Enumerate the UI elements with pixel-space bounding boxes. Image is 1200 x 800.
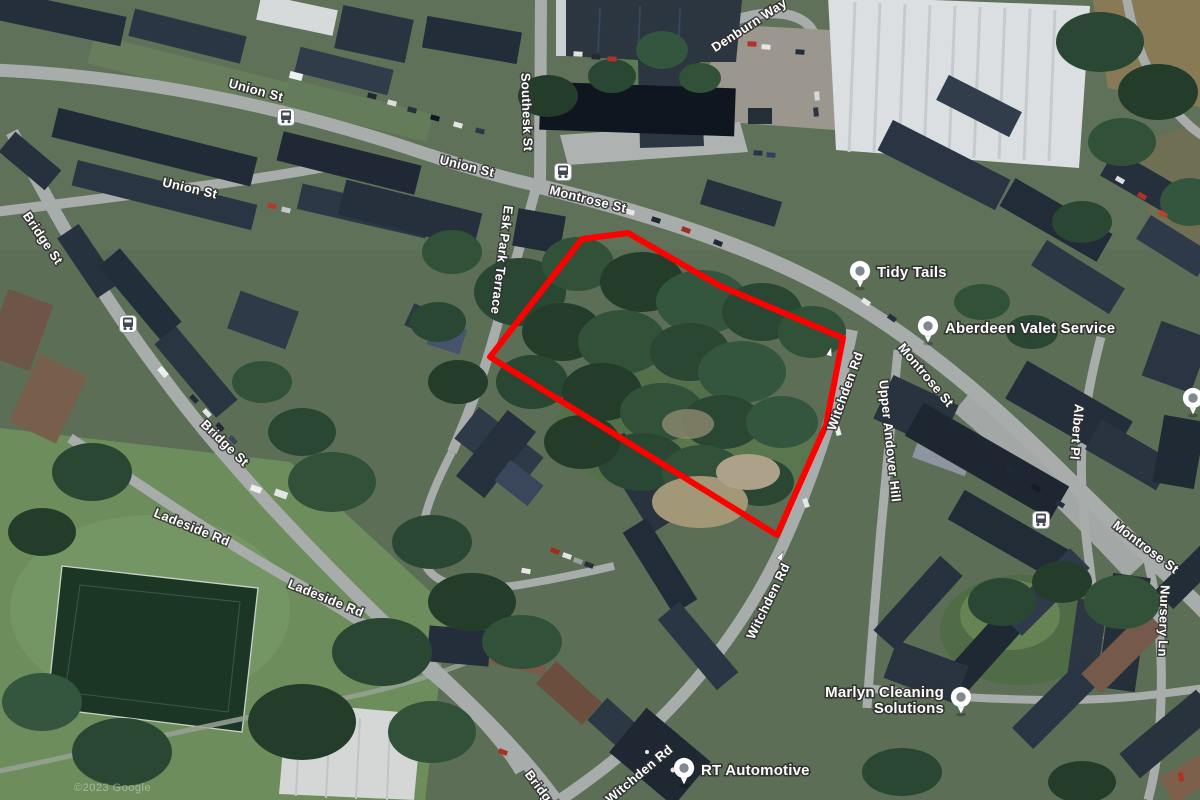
poi-label-tidy-tails[interactable]: Tidy Tails bbox=[877, 264, 947, 281]
street-label: Southesk St bbox=[518, 73, 536, 152]
map-viewport[interactable]: Union StUnion StUnion StSouthesk StMontr… bbox=[0, 0, 1200, 800]
bus-stop-icon[interactable] bbox=[555, 164, 572, 181]
bus-stop-icon[interactable] bbox=[278, 109, 295, 126]
bus-stop-icon[interactable] bbox=[1033, 512, 1050, 529]
poi-label-rt-automotive[interactable]: RT Automotive bbox=[701, 762, 810, 779]
bus-stop-icon[interactable] bbox=[120, 316, 137, 333]
street-label: Nursery Ln bbox=[1155, 585, 1172, 657]
poi-label-aberdeen-valet-service[interactable]: Aberdeen Valet Service bbox=[945, 320, 1115, 337]
map-attribution: ©2023 Google bbox=[74, 782, 151, 794]
